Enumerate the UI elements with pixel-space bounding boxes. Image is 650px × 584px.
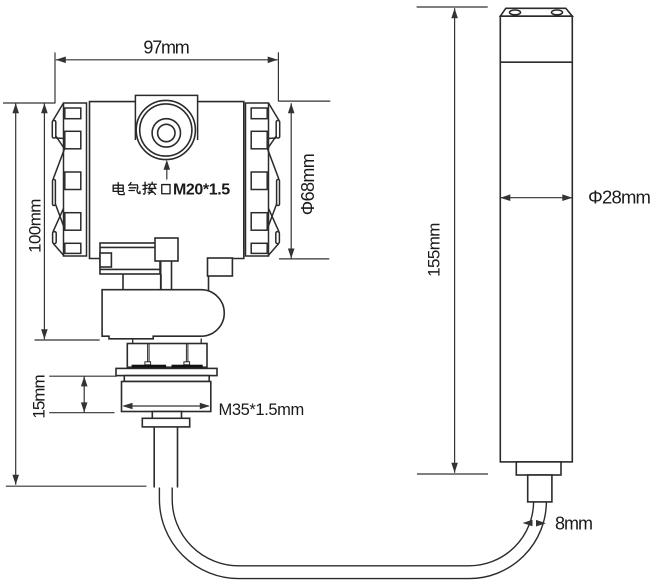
- svg-text:97mm: 97mm: [143, 38, 188, 58]
- svg-text:155mm: 155mm: [425, 223, 444, 277]
- svg-text:15mm: 15mm: [30, 375, 49, 419]
- svg-text:Φ28mm: Φ28mm: [588, 187, 650, 208]
- svg-text:M35*1.5mm: M35*1.5mm: [219, 401, 304, 419]
- svg-text:8mm: 8mm: [555, 514, 592, 534]
- svg-text:100mm: 100mm: [26, 199, 45, 253]
- svg-text:Φ68mm: Φ68mm: [298, 154, 318, 215]
- svg-text:M20*1.5: M20*1.5: [173, 182, 230, 199]
